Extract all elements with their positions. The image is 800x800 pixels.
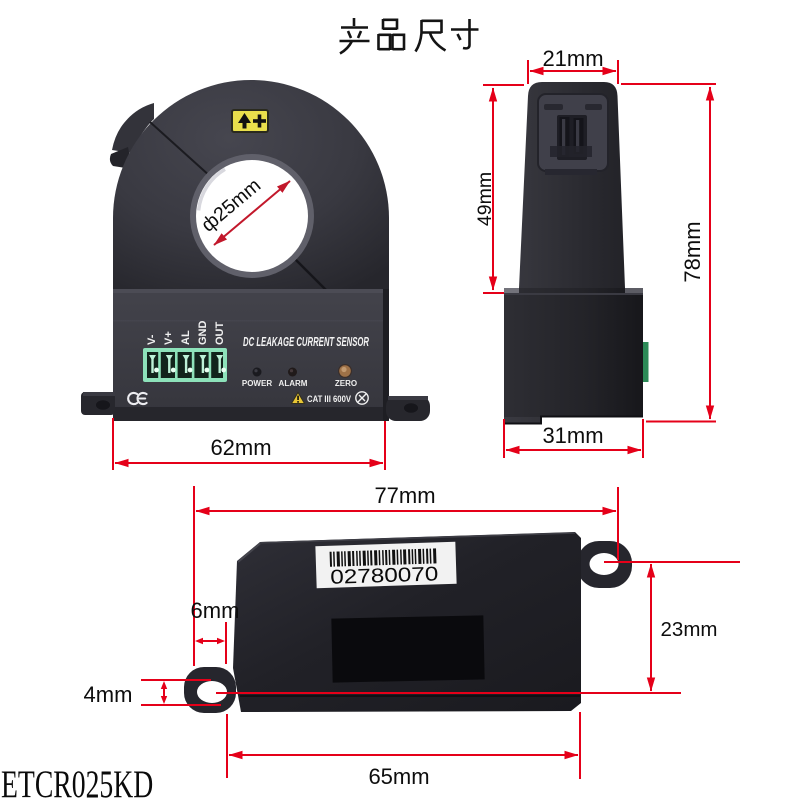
svg-text:AL: AL bbox=[180, 330, 192, 345]
svg-text:ZERO: ZERO bbox=[335, 379, 357, 388]
svg-text:V+: V+ bbox=[163, 331, 175, 345]
svg-text:ETCR025KD: ETCR025KD bbox=[1, 764, 153, 800]
svg-text:31mm: 31mm bbox=[542, 423, 603, 448]
svg-text:CAT III 600V: CAT III 600V bbox=[307, 394, 352, 405]
svg-text:65mm: 65mm bbox=[368, 764, 429, 789]
svg-text:02780070: 02780070 bbox=[330, 563, 439, 588]
svg-text:21mm: 21mm bbox=[542, 46, 603, 71]
svg-text:OUT: OUT bbox=[214, 322, 226, 346]
svg-text:4mm: 4mm bbox=[84, 682, 133, 707]
svg-text:6mm: 6mm bbox=[191, 598, 240, 623]
svg-text:ALARM: ALARM bbox=[279, 379, 308, 388]
svg-text:62mm: 62mm bbox=[210, 435, 271, 460]
svg-text:49mm: 49mm bbox=[474, 172, 496, 226]
svg-text:DC LEAKAGE CURRENT SENSOR: DC LEAKAGE CURRENT SENSOR bbox=[243, 335, 369, 349]
svg-text:77mm: 77mm bbox=[374, 483, 435, 508]
svg-text:23mm: 23mm bbox=[661, 618, 718, 641]
svg-text:GND: GND bbox=[197, 321, 209, 346]
svg-text:78mm: 78mm bbox=[680, 221, 705, 282]
svg-text:POWER: POWER bbox=[242, 379, 272, 388]
svg-text:V-: V- bbox=[146, 334, 158, 345]
